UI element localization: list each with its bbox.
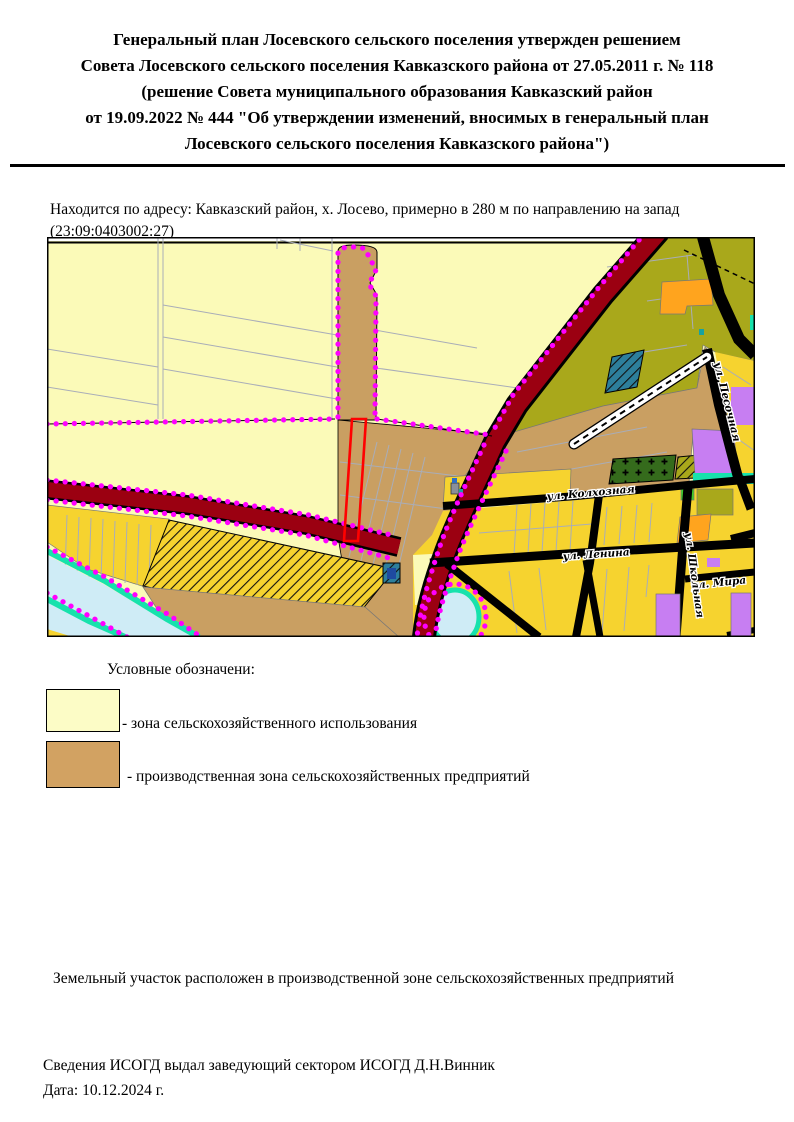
- legend-label-production: - производственная зона сельскохозяйстве…: [127, 768, 530, 786]
- olive-parcel-small: [697, 489, 733, 515]
- legend-heading: Условные обозначени:: [107, 661, 255, 679]
- production-zone-finger: [338, 245, 377, 420]
- zoning-map-svg: ул. Колхозная ул. Ленина ул. Мира ул. Шк…: [47, 237, 755, 637]
- teal-hatched-parcel-s: [383, 563, 400, 583]
- title-line: Лосевского сельского поселения Кавказско…: [0, 131, 794, 157]
- legend-label-agricultural: - зона сельскохозяйственного использован…: [122, 715, 417, 733]
- document-page: Генеральный план Лосевского сельского по…: [0, 0, 794, 1122]
- document-title: Генеральный план Лосевского сельского по…: [0, 27, 794, 157]
- zone-note: Земельный участок расположен в производс…: [53, 970, 773, 988]
- purple-parcel-s1: [656, 594, 680, 637]
- cemetery-parcel: [609, 455, 676, 484]
- title-line: (решение Совета муниципального образован…: [0, 79, 794, 105]
- document-date: Дата: 10.12.2024 г.: [43, 1082, 164, 1100]
- issued-by-text: Сведения ИСОГД выдал заведующий сектором…: [43, 1057, 495, 1075]
- title-line: Совета Лосевского сельского поселения Ка…: [0, 53, 794, 79]
- title-divider: [10, 164, 785, 167]
- legend-swatch-agricultural: [46, 689, 120, 732]
- teal-dot-ne: [699, 329, 704, 335]
- purple-parcel-s3: [707, 558, 720, 567]
- address-text: Находится по адресу: Кавказский район, х…: [50, 199, 750, 243]
- legend-swatch-production: [46, 741, 120, 788]
- title-line: Генеральный план Лосевского сельского по…: [0, 27, 794, 53]
- purple-parcel-s2: [731, 593, 751, 637]
- title-line: от 19.09.2022 № 444 "Об утверждении изме…: [0, 105, 794, 131]
- zoning-map: ул. Колхозная ул. Ленина ул. Мира ул. Шк…: [47, 237, 755, 637]
